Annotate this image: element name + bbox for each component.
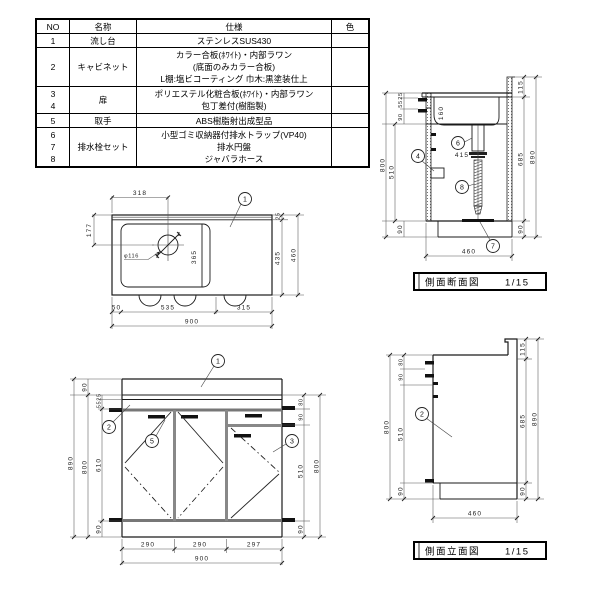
- spec-line: 小型ゴミ収納器付排水トラップ(VP40): [139, 129, 329, 141]
- dim-25-label: 25: [276, 212, 282, 219]
- col-color: 色: [332, 19, 370, 34]
- callout-1-number: 1: [216, 359, 220, 366]
- spec-line: ジャバラホース: [139, 153, 329, 165]
- spec-line: (底面のみカラー合板): [139, 61, 329, 73]
- dim-90-label: 90: [398, 113, 404, 120]
- dim-900-label: 900: [195, 556, 209, 563]
- front-dims-right: 80 90 510 90 800: [282, 393, 326, 539]
- callout-3-number: 3: [290, 439, 294, 446]
- callout-8: 8: [456, 181, 475, 194]
- dim-900-label: 900: [185, 319, 199, 326]
- row678-name: 排水栓セット: [70, 128, 137, 168]
- front-dims-left: 90 25 55 610 90 800 890: [68, 377, 123, 539]
- dim-435-label: 435: [275, 251, 282, 265]
- spec-table: NO 名称 仕様 色 1 流し台 ステンレスSUS430 2 キャビネット カラ…: [35, 18, 370, 168]
- callout-1: 1: [201, 355, 225, 388]
- dim-55-label: 55: [97, 401, 103, 408]
- row678-color: [332, 128, 370, 168]
- front-cabinet-outline: [109, 379, 295, 537]
- dim-290a-label: 290: [141, 542, 155, 549]
- row5-spec: ABS樹脂射出成型品: [137, 114, 332, 128]
- dim-90-right-bottom-label: 90: [298, 524, 305, 533]
- elev-title-box: 側面立面図 1/15: [414, 542, 546, 559]
- side-elevation-view: 80 90 510 90 800 115 685 90 890: [378, 330, 600, 575]
- spec-line: L棚:塩ビコーティング 巾木:黒塗装仕上: [139, 73, 329, 85]
- section-drain-disc: [462, 219, 494, 222]
- elev-scale: 1/15: [505, 547, 530, 558]
- dim-25-label: 25: [398, 92, 404, 99]
- no-line: 3: [39, 88, 67, 100]
- dim-80-label: 80: [399, 358, 405, 365]
- dim-115-label: 115: [518, 80, 525, 94]
- section-side-fitting: [431, 168, 444, 178]
- drawing-sheet: NO 名称 仕様 色 1 流し台 ステンレスSUS430 2 キャビネット カラ…: [0, 0, 600, 600]
- spec-line: カラー合板(ﾎﾜｲﾄ)・内部ラワン: [139, 49, 329, 61]
- callout-1-number: 1: [243, 197, 247, 204]
- row2-color: [332, 48, 370, 87]
- callout-7-number: 7: [491, 244, 495, 251]
- row34-name: 扉: [70, 87, 137, 114]
- section-dims-right: 115 685 90 890: [512, 75, 542, 239]
- dim-800-label: 800: [380, 158, 387, 172]
- elev-dims-right: 115 685 90 890: [517, 337, 544, 501]
- dim-90-top-label: 90: [82, 382, 89, 391]
- handle-door1: [148, 415, 165, 419]
- dim-90-right-label: 90: [299, 413, 305, 420]
- front-view: 90 25 55 610 90 800 890 80 90 510: [52, 345, 357, 595]
- dim-315-label: 315: [237, 305, 251, 312]
- row678-no: 6 7 8: [36, 128, 70, 168]
- dim-115-label: 115: [520, 342, 527, 356]
- callout-5: 5: [146, 420, 166, 448]
- dim-90-right-label: 90: [520, 486, 527, 495]
- callout-6: 6: [452, 137, 473, 150]
- row5-name: 取手: [70, 114, 137, 128]
- row34-color: [332, 87, 370, 114]
- dim-535-label: 535: [161, 305, 175, 312]
- dim-90-right-label: 90: [518, 224, 525, 233]
- col-name: 名称: [70, 19, 137, 34]
- dim-460-label: 460: [468, 511, 482, 518]
- row678-spec: 小型ゴミ収納器付排水トラップ(VP40) 排水円盤 ジャバラホース: [137, 128, 332, 168]
- side-section-view: 160 415: [378, 68, 600, 313]
- dim-290b-label: 290: [193, 542, 207, 549]
- dim-890-label: 890: [68, 456, 75, 470]
- table-row: 3 4 扉 ポリエステル化粧合板(ﾎﾜｲﾄ)・内部ラワン 包丁差付(樹脂製): [36, 87, 369, 114]
- row2-name: キャビネット: [70, 48, 137, 87]
- dim-460-label: 460: [291, 248, 298, 262]
- door-swing-lines: [125, 412, 279, 518]
- dim-80-label: 80: [299, 398, 305, 405]
- callout-1: 1: [230, 193, 252, 228]
- row1-name: 流し台: [70, 34, 137, 48]
- spec-header-row: NO 名称 仕様 色: [36, 19, 369, 34]
- callout-6-number: 6: [456, 141, 460, 148]
- dim-25-label: 25: [97, 393, 103, 400]
- dim-drain: φ116: [124, 254, 139, 260]
- no-line: 4: [39, 100, 67, 112]
- dim-55-label: 55: [398, 100, 404, 107]
- row5-color: [332, 114, 370, 128]
- plan-dims-bottom: 50 535 315 900: [110, 297, 274, 329]
- handle-drawer: [245, 414, 262, 418]
- dim-90-bottom-label: 90: [397, 224, 404, 233]
- section-scale: 1/15: [505, 278, 530, 289]
- col-no: NO: [36, 19, 70, 34]
- col-spec: 仕様: [137, 19, 332, 34]
- plan-view: φ116 365 318 177: [58, 183, 358, 335]
- dim-460-label: 460: [462, 249, 476, 256]
- dim-50-label: 50: [112, 305, 121, 312]
- handle-door3: [234, 434, 251, 438]
- dim-510-label: 510: [389, 165, 396, 179]
- callout-5-number: 5: [150, 439, 154, 446]
- table-row: 5 取手 ABS樹脂射出成型品: [36, 114, 369, 128]
- dim-160-label: 160: [438, 106, 445, 120]
- row34-spec: ポリエステル化粧合板(ﾎﾜｲﾄ)・内部ラワン 包丁差付(樹脂製): [137, 87, 332, 114]
- callout-2-number: 2: [420, 412, 424, 419]
- no-line: 7: [39, 141, 67, 153]
- dim-685-label: 685: [518, 152, 525, 166]
- dim-297-label: 297: [247, 542, 261, 549]
- row5-no: 5: [36, 114, 70, 128]
- spec-line: ポリエステル化粧合板(ﾎﾜｲﾄ)・内部ラワン: [139, 88, 329, 100]
- callout-8-number: 8: [460, 185, 464, 192]
- callout-3: 3: [273, 435, 299, 453]
- elev-cabinet-outline: [425, 339, 517, 499]
- dim-510-label: 510: [298, 464, 305, 478]
- section-title: 側面断面図: [425, 277, 480, 289]
- dim-177-label: 177: [86, 223, 93, 237]
- section-dim-bottom: 460: [424, 223, 514, 261]
- elev-title: 側面立面図: [425, 546, 480, 558]
- table-row: 6 7 8 排水栓セット 小型ゴミ収納器付排水トラップ(VP40) 排水円盤 ジ…: [36, 128, 369, 168]
- front-dims-bottom: 290 290 297 900: [120, 539, 284, 565]
- dim-90-bottom-label: 90: [96, 524, 103, 533]
- dim-800-right-label: 800: [314, 459, 321, 473]
- dim-90-label: 90: [399, 373, 405, 380]
- dim-90-bottom-label: 90: [398, 486, 405, 495]
- spec-line: 包丁差付(樹脂製): [139, 100, 329, 112]
- table-row: 1 流し台 ステンレスSUS430: [36, 34, 369, 48]
- spec-line: 排水円盤: [139, 141, 329, 153]
- no-line: 6: [39, 129, 67, 141]
- callout-2: 2: [416, 408, 453, 438]
- elev-dim-bottom: 460: [431, 485, 519, 523]
- row2-no: 2: [36, 48, 70, 87]
- dim-510-label: 510: [398, 427, 405, 441]
- dim-415-label: 415: [455, 152, 469, 159]
- dim-890-label: 890: [532, 412, 539, 426]
- row1-spec: ステンレスSUS430: [137, 34, 332, 48]
- plan-dims-right: 25 435 460: [272, 212, 304, 297]
- dim-800-label: 800: [384, 420, 391, 434]
- plan-dim-177: 177: [86, 213, 154, 247]
- callout-2-number: 2: [107, 425, 111, 432]
- plan-handle-arcs: [139, 295, 246, 306]
- row1-color: [332, 34, 370, 48]
- dim-800-left-label: 800: [82, 460, 89, 474]
- dim-318-label: 318: [133, 190, 147, 197]
- callout-4-number: 4: [416, 154, 420, 161]
- row2-spec: カラー合板(ﾎﾜｲﾄ)・内部ラワン (底面のみカラー合板) L棚:塩ビコーティン…: [137, 48, 332, 87]
- row34-no: 3 4: [36, 87, 70, 114]
- dim-610-label: 610: [96, 458, 103, 472]
- section-sink-bowl: 160: [434, 97, 499, 125]
- section-flexible-hose: [474, 160, 482, 214]
- table-row: 2 キャビネット カラー合板(ﾎﾜｲﾄ)・内部ラワン (底面のみカラー合板) L…: [36, 48, 369, 87]
- section-title-box: 側面断面図 1/15: [414, 273, 546, 290]
- dim-365: 365: [191, 250, 198, 264]
- dim-685-label: 685: [520, 414, 527, 428]
- row1-no: 1: [36, 34, 70, 48]
- plan-dim-318: 318: [110, 190, 170, 229]
- dim-890-label: 890: [530, 150, 537, 164]
- no-line: 8: [39, 153, 67, 165]
